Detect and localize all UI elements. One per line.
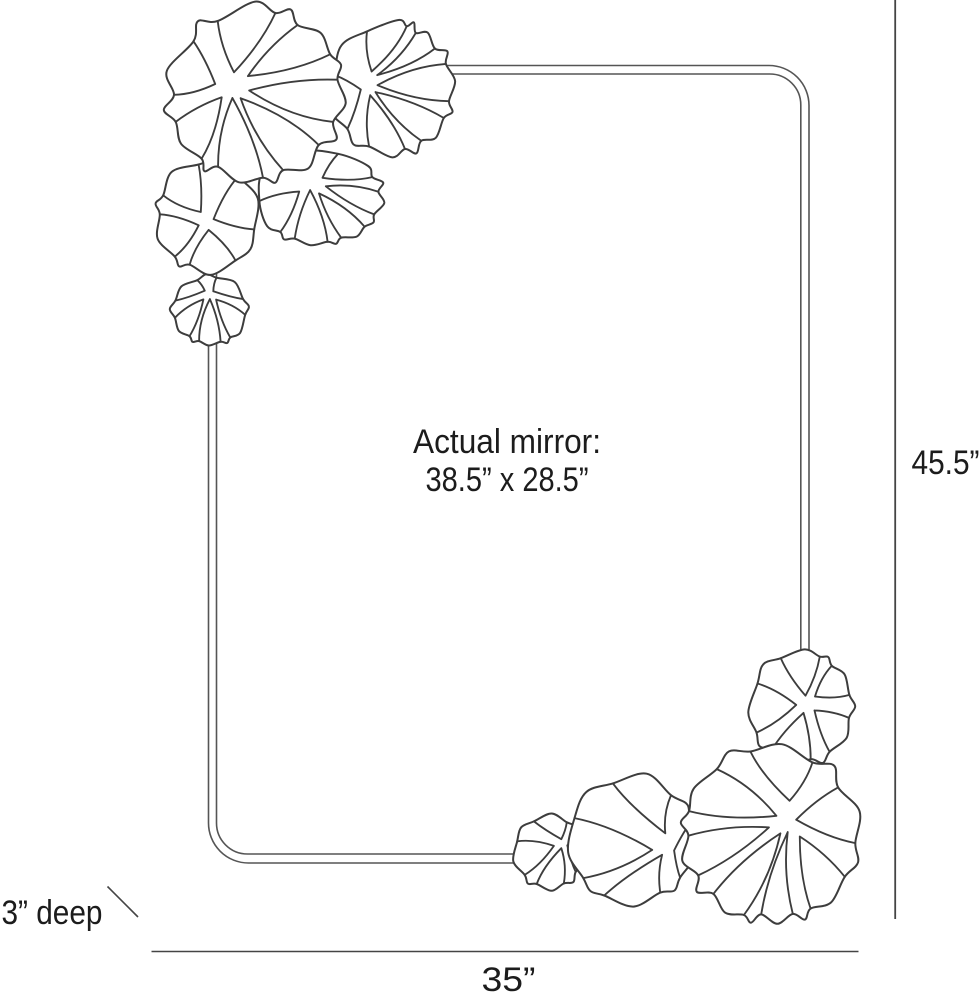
svg-text:Actual mirror:: Actual mirror:: [413, 423, 601, 461]
svg-text:45.5”: 45.5”: [912, 444, 980, 482]
svg-text:38.5” x 28.5”: 38.5” x 28.5”: [426, 461, 589, 499]
svg-text:35”: 35”: [482, 961, 536, 999]
svg-text:3” deep: 3” deep: [2, 894, 103, 932]
